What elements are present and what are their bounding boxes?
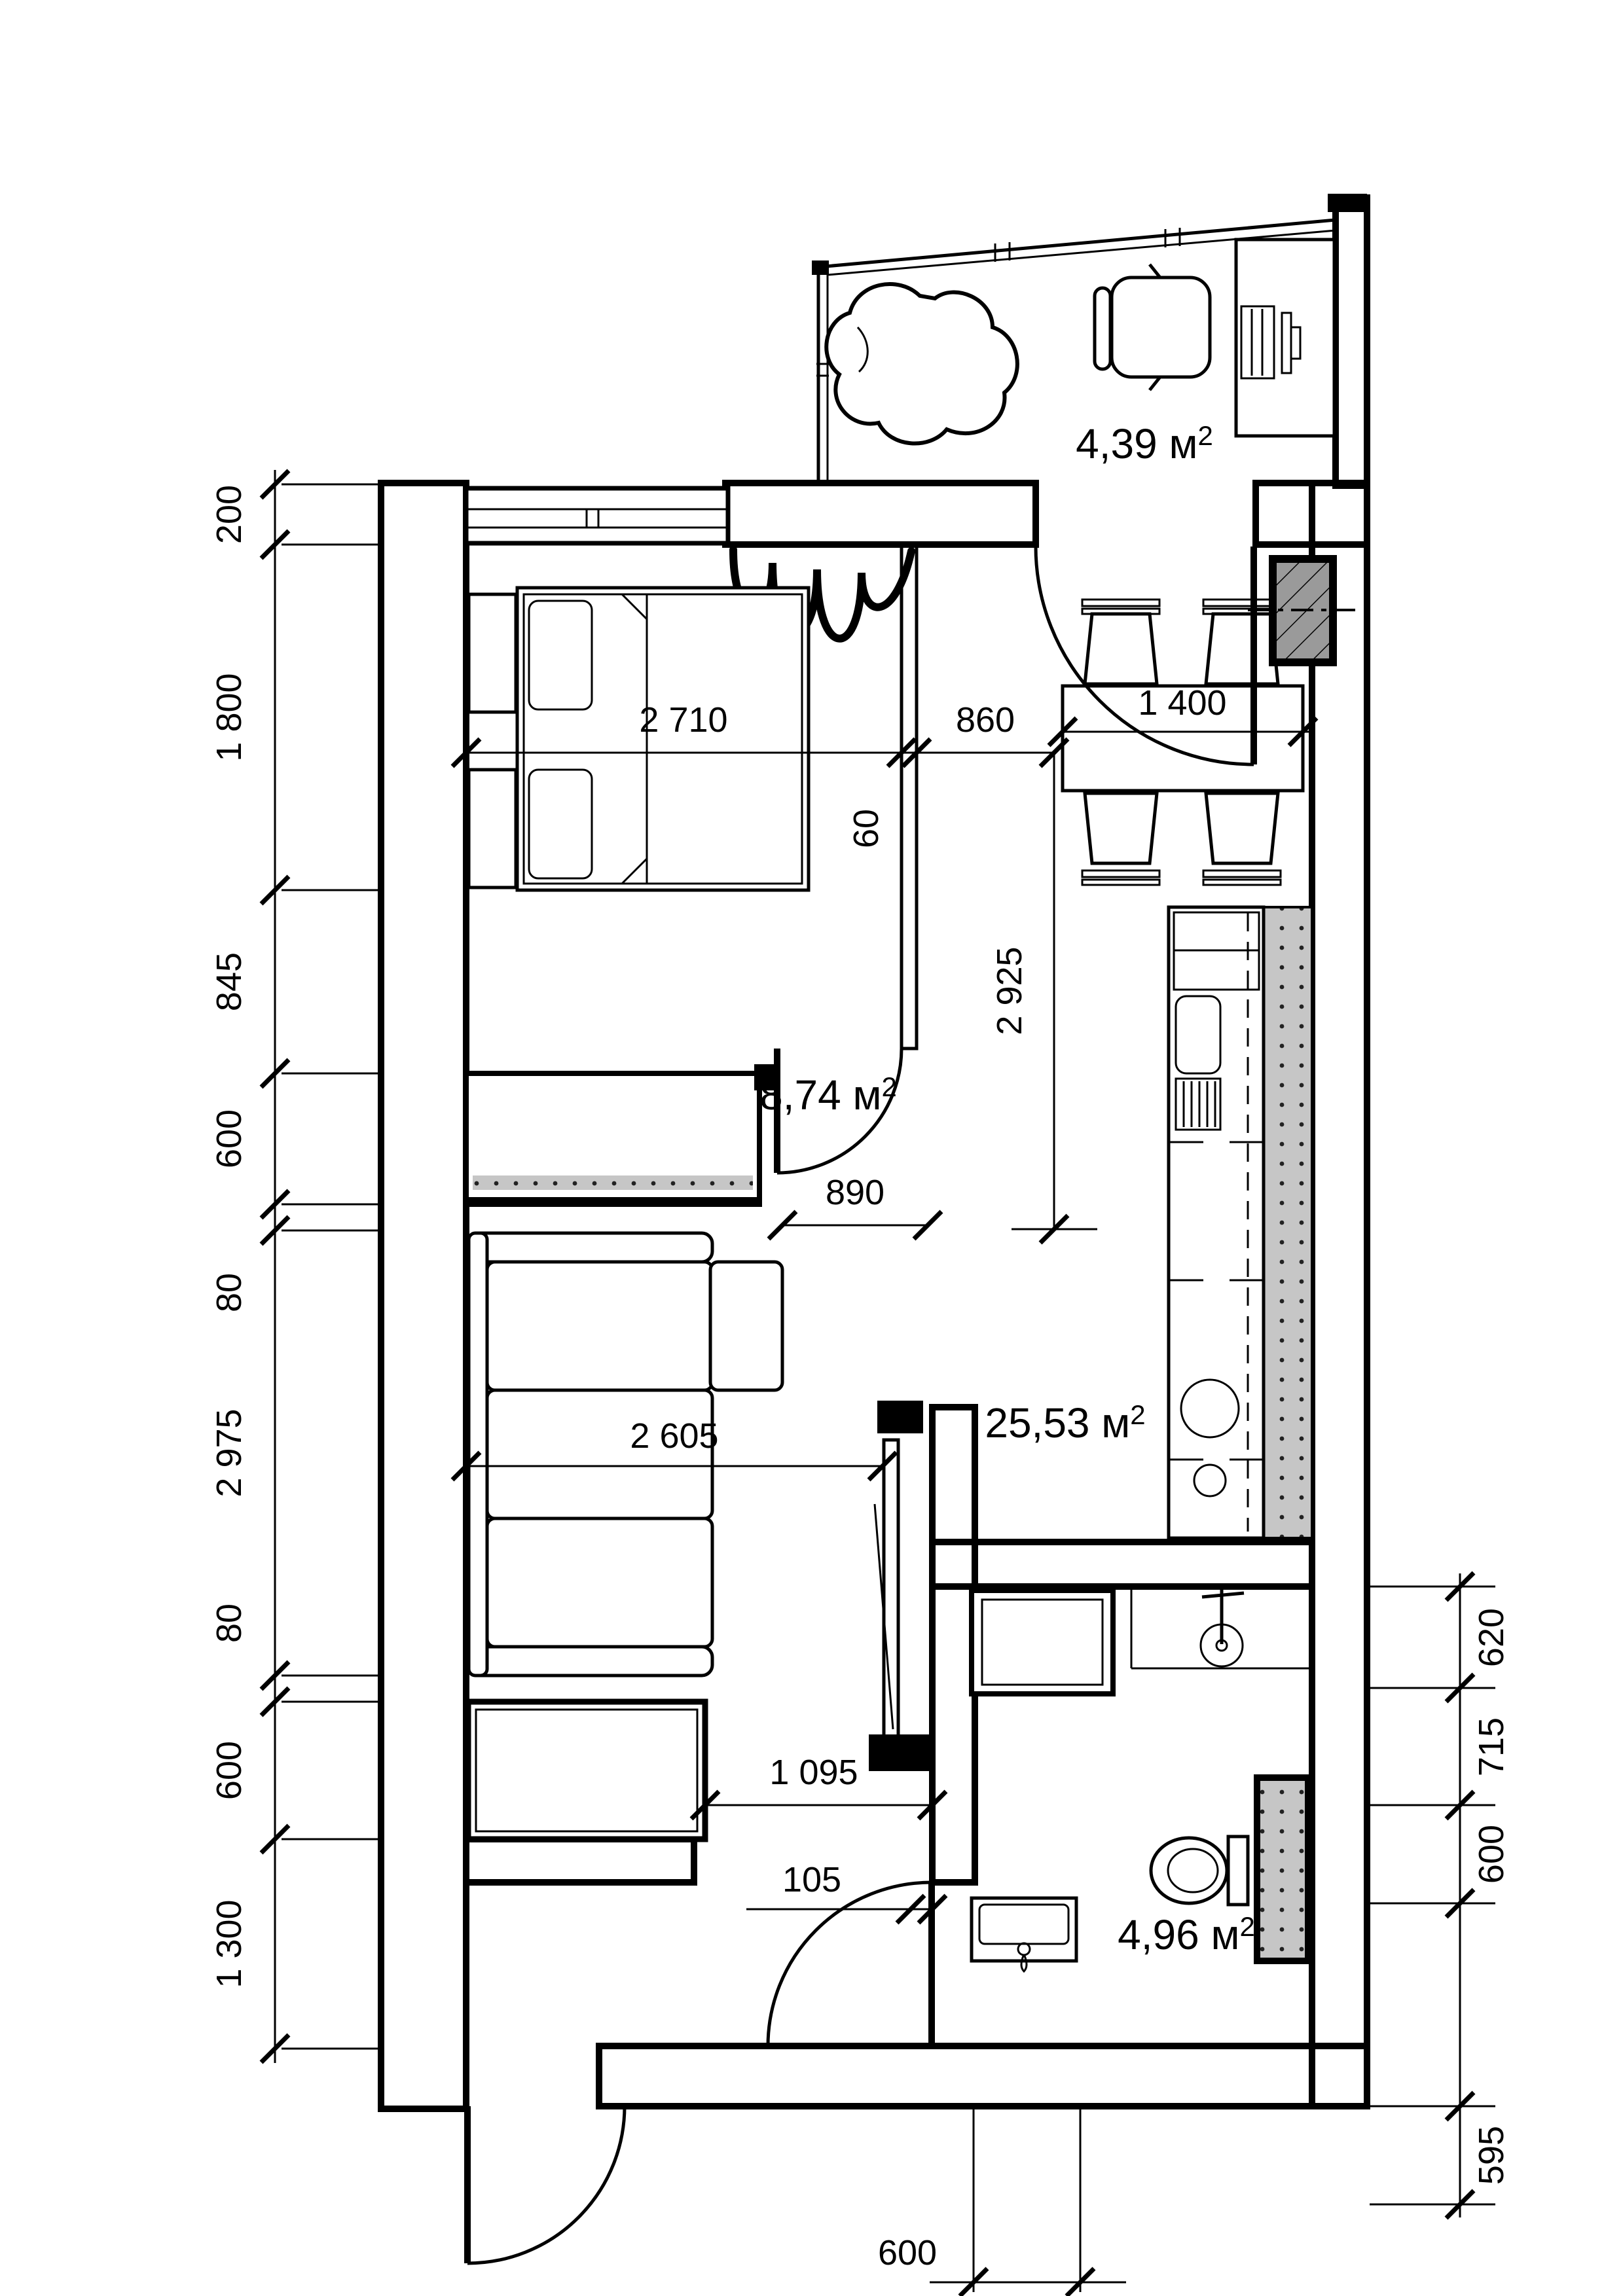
dim-chain-right-extensions [1370, 1587, 1495, 2204]
dim-right-715: 715 [1472, 1717, 1511, 1776]
bathroom-sink-icon [972, 1898, 1076, 1961]
label-balcony-area: 4,39 м2 [1076, 420, 1213, 467]
dim-opening-860: 860 [956, 700, 1015, 740]
office-chair-back [1095, 288, 1110, 369]
office-chair-seat [1112, 278, 1210, 377]
wall-exterior-left [381, 483, 466, 2109]
dim-left-80b: 80 [210, 1604, 249, 1643]
wall-exterior-bottom [599, 2046, 1367, 2106]
dim-table-1400: 1 400 [1138, 683, 1226, 723]
dim-passage-890: 890 [826, 1173, 884, 1212]
kitchen-apron-strip [1264, 907, 1312, 1538]
wall-sliding-door-stub-top [877, 1401, 923, 1433]
label-bathroom-area: 4,96 м2 [1118, 1911, 1255, 1958]
sofa-cushion [487, 1518, 712, 1647]
dim-hall-width: 1 095 [769, 1753, 858, 1792]
dim-living-width: 2 605 [630, 1416, 718, 1456]
dim-left-845: 845 [210, 952, 249, 1011]
plant-icon [826, 284, 1017, 443]
dim-left-200: 200 [210, 485, 249, 544]
wall-exterior-right [1312, 483, 1367, 2106]
window-bedroom [466, 488, 728, 543]
dim-right-600: 600 [1472, 1825, 1511, 1884]
dim-bedroom-width: 2 710 [639, 700, 727, 740]
shower-bar [1202, 1593, 1244, 1597]
balcony [812, 220, 1336, 484]
dim-left-1300: 1 300 [210, 1899, 249, 1988]
dim-left-1800: 1 800 [210, 673, 249, 761]
dim-chain-left-extensions [282, 484, 384, 2049]
door-entrance-swing [467, 2106, 625, 2263]
dim-left-600b: 600 [210, 1741, 249, 1800]
sofa-armrest [469, 1233, 712, 1262]
nightstand [469, 594, 516, 712]
dim-partition-60: 60 [847, 809, 886, 848]
dimensions: 200 1 800 845 600 80 2 975 80 600 1 300 … [210, 470, 1511, 2296]
wall-sliding-door-stub-bottom [869, 1734, 932, 1771]
dim-right-620: 620 [1472, 1608, 1511, 1667]
faucet-drop [1021, 1954, 1027, 1971]
wall-balcony-top-cap [1328, 194, 1367, 212]
dim-basin-600: 600 [878, 2233, 937, 2272]
vent-shaft-bathroom [1257, 1778, 1308, 1961]
dim-right-595: 595 [1472, 2126, 1511, 2185]
wardrobe-hall [468, 1702, 705, 1839]
wall-bathroom-top [932, 1542, 1312, 1587]
door-bathroom-swing [768, 1882, 932, 2046]
wall-vestibule-partition [466, 1839, 694, 1882]
balcony-glazing-corner [812, 260, 829, 275]
dining-chair [1203, 793, 1281, 885]
label-living-area: 25,53 м2 [985, 1399, 1145, 1446]
dining-chair [1082, 793, 1159, 885]
dim-left-2975: 2 975 [210, 1408, 249, 1497]
wall-bathroom-left [932, 1407, 975, 1882]
label-bedroom-area: 8,74 м2 [759, 1071, 897, 1119]
floor-plan-drawing: 200 1 800 845 600 80 2 975 80 600 1 300 … [0, 0, 1623, 2296]
kitchen-counter [1169, 907, 1264, 1538]
wall-top-center-pier [725, 483, 1036, 545]
dim-left-600: 600 [210, 1109, 249, 1168]
dim-left-80: 80 [210, 1273, 249, 1312]
office-chair-leg [1150, 377, 1160, 390]
nightstand [469, 770, 516, 888]
toilet-icon [1151, 1838, 1227, 1903]
sofa-chaise-cushion [710, 1262, 782, 1390]
partition-bedroom [902, 545, 917, 1049]
dim-corridor-2925: 2 925 [990, 946, 1029, 1035]
sofa-cushion [487, 1262, 712, 1390]
floor-plan-sheet: 200 1 800 845 600 80 2 975 80 600 1 300 … [0, 0, 1623, 2296]
washing-machine-icon [972, 1590, 1113, 1694]
dining-chair [1082, 600, 1159, 684]
wall-balcony-right [1336, 198, 1367, 486]
office-chair-leg [1150, 264, 1160, 278]
toilet-tank [1228, 1837, 1248, 1905]
wardrobe-bedroom-strip [473, 1175, 753, 1190]
dim-hall-offset: 105 [782, 1860, 841, 1899]
sofa-armrest [469, 1647, 712, 1676]
